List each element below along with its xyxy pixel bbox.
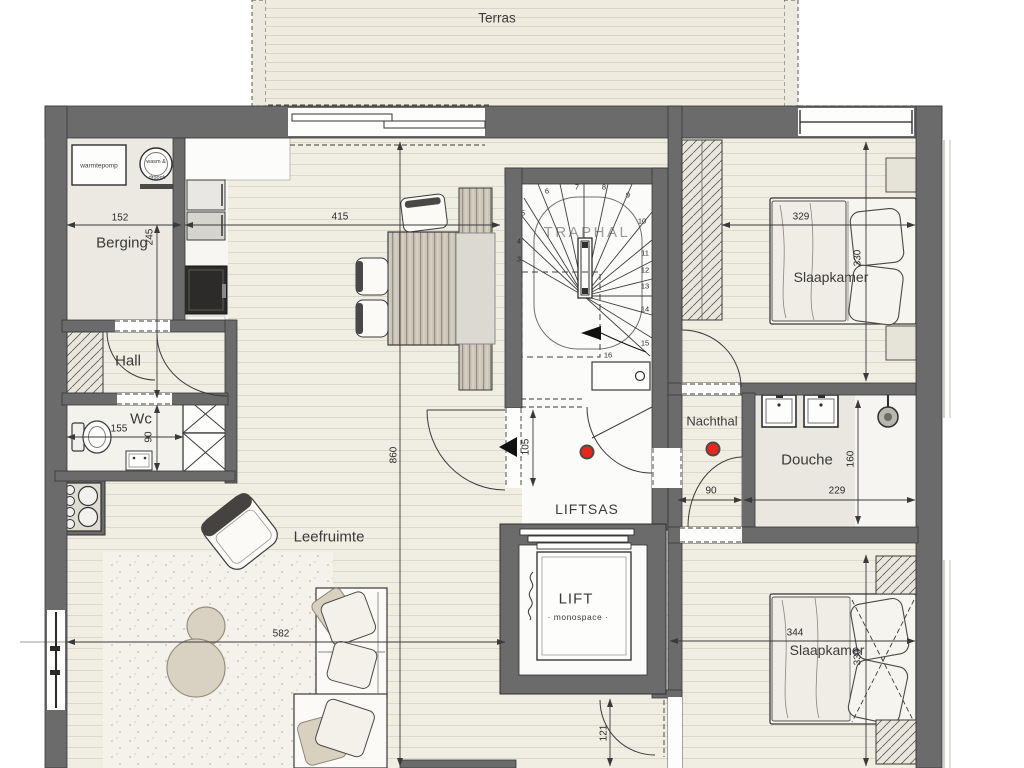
stair-step-number: 13	[641, 282, 649, 291]
hall-closet	[67, 332, 103, 393]
heat-pump-label: warmtepomp	[80, 163, 118, 170]
floorplan-canvas: TRAPHAL	[0, 0, 1024, 768]
oven	[185, 266, 227, 314]
coffee-table	[167, 639, 225, 697]
room-label-liftsas: LIFTSAS	[555, 501, 619, 517]
dim-douche-width: 229	[829, 486, 846, 497]
dim-bedroom2-door: 121	[599, 725, 610, 742]
washer-label-top: wasm &	[146, 159, 166, 165]
wardrobe-bedroom2	[876, 720, 916, 764]
dim-wc-width: 155	[111, 424, 128, 435]
stair-step-number: 12	[641, 266, 649, 275]
terras-floor	[266, 0, 784, 106]
terras-post-left	[252, 0, 266, 106]
stair-step-number: 6	[545, 187, 549, 196]
fridge	[187, 180, 225, 240]
nightstand	[886, 326, 916, 360]
window-left	[47, 610, 65, 710]
sink	[804, 391, 838, 427]
dim-liftsas-door: 105	[521, 439, 532, 456]
dim-living-width: 582	[273, 629, 290, 640]
stair-step-number: 14	[641, 305, 649, 314]
wc-sink	[126, 451, 152, 470]
stair-step-number: 3	[517, 255, 521, 264]
kitchen-island	[456, 188, 495, 390]
stair-step-number: 15	[641, 339, 649, 348]
wardrobe-bedroom2	[876, 556, 916, 594]
stair-step-number: 11	[641, 249, 649, 258]
floorplan-drawing: TRAPHAL	[0, 0, 1024, 768]
dim-bedroom1-width: 329	[793, 212, 810, 223]
dim-berging-hall-height: 245	[145, 229, 156, 246]
kitchen-counter	[185, 138, 290, 180]
dining-chair	[400, 193, 448, 232]
dim-kitchen-width: 415	[332, 212, 349, 223]
stair-step-number: 16	[604, 351, 612, 360]
dining-chair	[356, 300, 388, 337]
room-label-douche: Douche	[781, 452, 833, 469]
smoke-detector-dot	[706, 442, 721, 457]
understair-fixture	[592, 362, 650, 390]
smoke-detector-dot	[580, 445, 595, 460]
dim-bedroom2-width: 344	[787, 628, 804, 639]
room-label-wc: Wc	[130, 411, 152, 428]
dining-table	[388, 232, 458, 345]
room-label-nachthal: Nachthal	[686, 414, 737, 429]
dining-chair	[356, 258, 388, 295]
window-top	[798, 106, 914, 136]
stair-step-number: 8	[602, 183, 606, 192]
room-label-terras: Terras	[478, 11, 516, 26]
room-label-hall: Hall	[115, 353, 141, 370]
stair-step-number: 9	[626, 191, 630, 200]
room-label-leefruimte: Leefruimte	[294, 529, 365, 546]
stair-newel	[578, 238, 592, 298]
stair-step-number: 5	[521, 209, 525, 218]
dim-nachthal-width: 90	[705, 486, 716, 497]
wardrobe-bedroom1	[682, 140, 722, 320]
room-label-slaapkamer-1: Slaapkamer	[794, 269, 869, 285]
dim-wc-height: 90	[144, 431, 155, 442]
washer-label-bottom: droogk	[149, 175, 166, 181]
stair-step-number: 4	[517, 237, 521, 246]
dim-berging-width: 152	[112, 213, 129, 224]
room-label-lift: LIFT	[559, 591, 594, 608]
lift-type-label: monospace	[548, 612, 609, 622]
dim-living-height: 860	[389, 447, 400, 464]
bed-2	[770, 594, 916, 726]
stair-step-number: 10	[638, 217, 646, 226]
lift-shaft	[500, 524, 666, 694]
dim-bedroom1-height: 330	[853, 250, 864, 267]
room-label-berging: Berging	[96, 235, 148, 252]
nightstand	[886, 158, 916, 192]
dim-bedroom2-height: 330	[853, 649, 864, 666]
technical-shaft	[183, 395, 228, 472]
dim-douche-height: 160	[846, 451, 857, 468]
terras-post-right	[784, 0, 798, 106]
stair-step-number: 7	[575, 183, 579, 192]
sink	[762, 391, 796, 427]
